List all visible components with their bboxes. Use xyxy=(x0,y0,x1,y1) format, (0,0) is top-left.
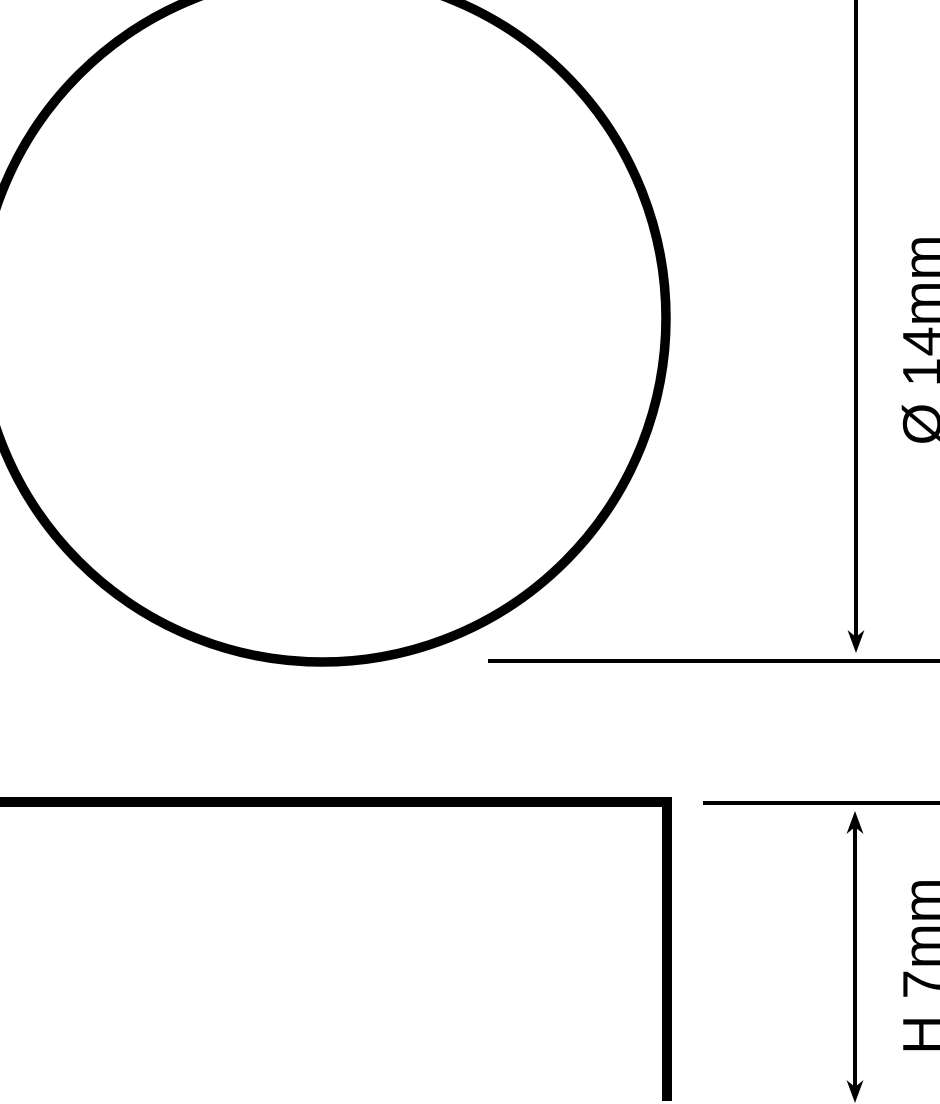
diameter-dimension-label: Ø 14mm xyxy=(891,235,940,446)
height-dimension-label: H 7mm xyxy=(891,877,940,1054)
technical-drawing-page: Ø 14mm H 7mm xyxy=(0,0,940,1104)
technical-drawing-canvas: Ø 14mm H 7mm xyxy=(0,0,940,1104)
drawing-background xyxy=(0,0,940,1104)
